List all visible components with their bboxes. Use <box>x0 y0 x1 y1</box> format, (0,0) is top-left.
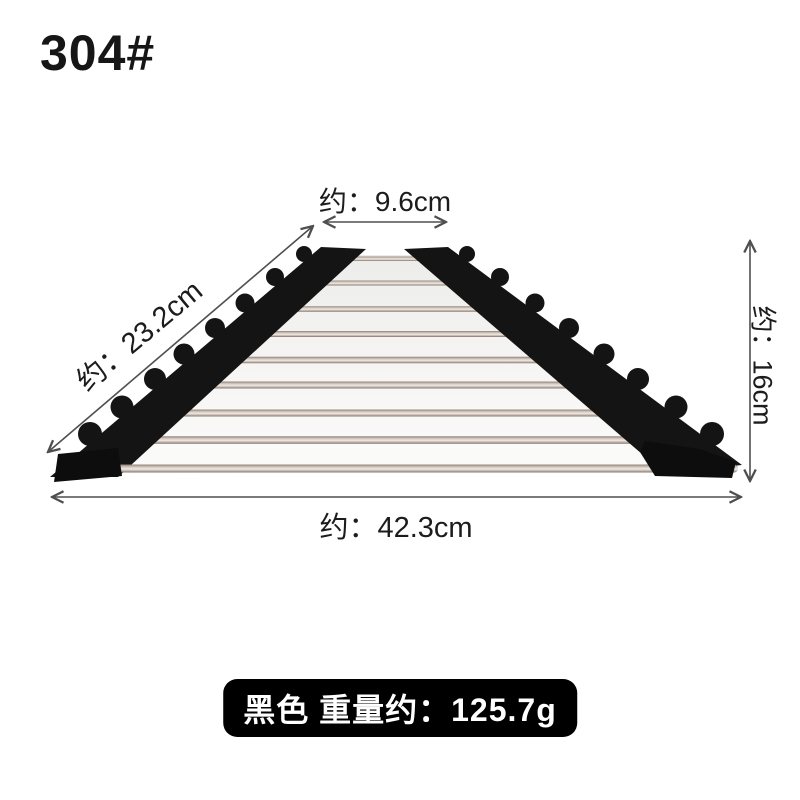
model-number-label: 304# <box>40 24 155 82</box>
product-photo-canvas: 304# 约：9.6cm 约：23.2cm 约：16cm 约：42.3cm 黑色… <box>0 0 800 800</box>
weight-color-badge: 黑色 重量约：125.7g <box>223 679 577 737</box>
dimension-label-top-width: 约：9.6cm <box>280 180 490 220</box>
bottom-rod <box>100 465 738 473</box>
dimension-label-height: 约：16cm <box>746 261 785 471</box>
dimension-label-bottom-width: 约：42.3cm <box>291 504 501 546</box>
